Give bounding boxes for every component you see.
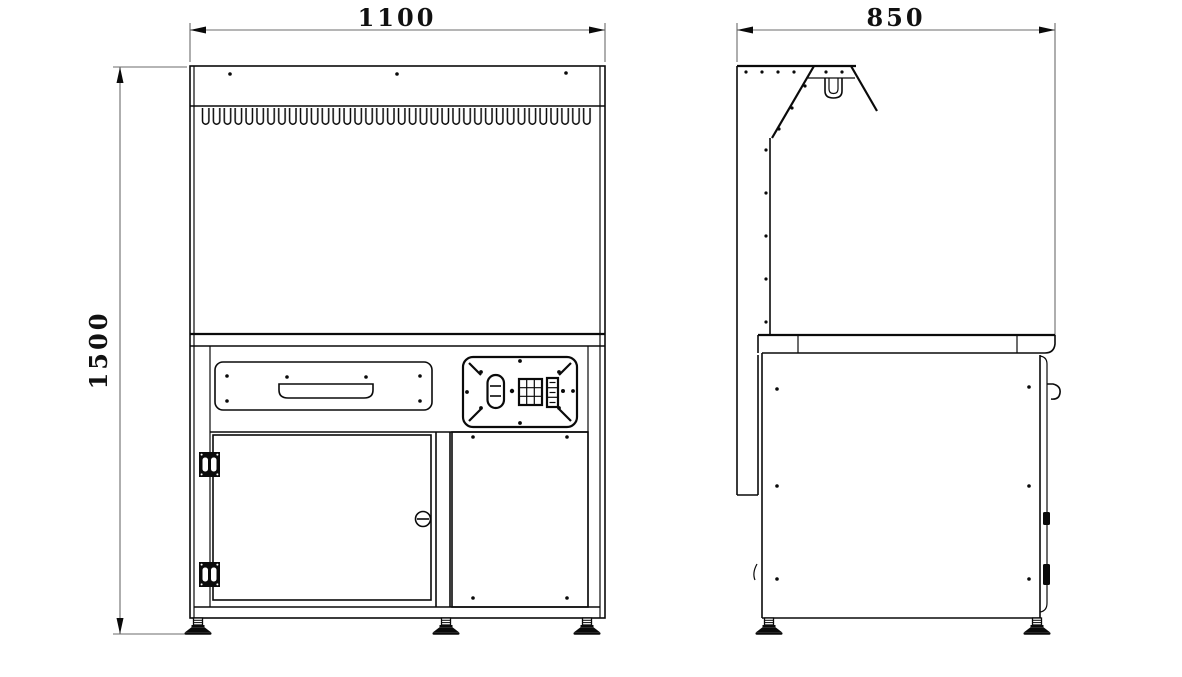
- door-lock: [416, 512, 431, 527]
- indicator-lights: [547, 378, 558, 407]
- sash-window: [190, 334, 605, 346]
- leveling-foot-side-rear: [1024, 618, 1051, 635]
- control-panel: [463, 357, 577, 427]
- worktop: [758, 335, 1055, 353]
- hood-profile: [737, 66, 877, 138]
- back-duct: [737, 66, 770, 580]
- door-hinge-bottom: [199, 562, 220, 587]
- center-mullion: [436, 432, 450, 607]
- top-panel: [190, 71, 605, 106]
- door-hinge-top: [199, 452, 220, 477]
- right-panel: [452, 432, 588, 607]
- technical-drawing: 1100 1500 850: [0, 0, 1182, 677]
- leveling-foot-side-front: [756, 618, 783, 635]
- dimension-label-height: 1500: [84, 311, 113, 390]
- leveling-foot-front-left: [185, 618, 212, 635]
- drawer-handle: [279, 384, 373, 398]
- keypad-display: [519, 379, 542, 405]
- duct-bracket: [825, 78, 842, 98]
- front-view: [185, 66, 606, 635]
- leveling-foot-front-right: [574, 618, 601, 635]
- hinge-tab-upper: [1043, 512, 1050, 525]
- hinge-tab-lower: [1043, 564, 1050, 585]
- drawer-panel: [215, 362, 432, 410]
- indicator-dot: [510, 389, 514, 393]
- rocker-switch: [488, 375, 505, 408]
- vent-grille: [200, 108, 592, 128]
- dimension-side-depth: 850: [737, 3, 1055, 335]
- side-hook: [1047, 384, 1060, 399]
- leveling-foot-front-center: [433, 618, 460, 635]
- front-frame: [190, 66, 605, 618]
- dimension-label-side-depth: 850: [866, 3, 925, 32]
- left-door: [199, 435, 431, 600]
- cabinet-side: [762, 353, 1060, 618]
- dimension-front-width: 1100: [190, 3, 605, 62]
- dimension-label-front-width: 1100: [358, 3, 437, 32]
- drawing-canvas: 1100 1500 850: [0, 0, 1182, 677]
- side-view: [737, 66, 1060, 635]
- dimension-height: 1500: [84, 67, 187, 634]
